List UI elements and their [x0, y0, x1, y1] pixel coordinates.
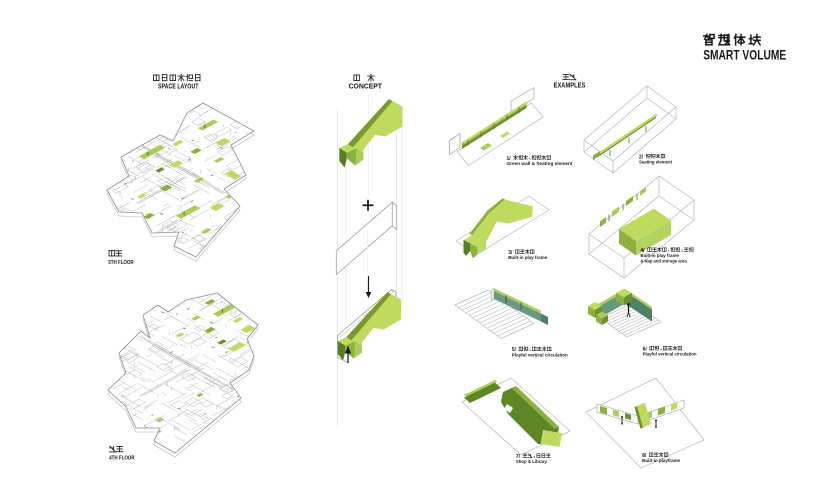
svg-text:SMART VOLUME: SMART VOLUME — [703, 47, 786, 63]
svg-text:& Nap and storage area: & Nap and storage area — [640, 258, 687, 263]
svg-text:Playful vertical circulation: Playful vertical circulation — [512, 352, 568, 357]
svg-text:4TH FLOOR: 4TH FLOOR — [109, 456, 135, 462]
svg-text:Built-in play frame: Built-in play frame — [640, 253, 679, 258]
svg-text:Shop & Library: Shop & Library — [516, 459, 547, 464]
svg-text:Built-in play frame: Built-in play frame — [508, 255, 547, 260]
svg-text:5TH FLOOR: 5TH FLOOR — [108, 260, 134, 266]
svg-text:Playful vertical circulation: Playful vertical circulation — [643, 352, 697, 357]
svg-text:EXAMPLES: EXAMPLES — [554, 80, 586, 89]
svg-text:Seating element: Seating element — [639, 160, 672, 165]
svg-text:Built-in playframe: Built-in playframe — [642, 458, 680, 463]
svg-text:CONCEPT: CONCEPT — [349, 81, 383, 90]
svg-text:Green wall & Seating element: Green wall & Seating element — [507, 161, 573, 166]
svg-text:SPACE LAYOUT: SPACE LAYOUT — [158, 81, 199, 90]
